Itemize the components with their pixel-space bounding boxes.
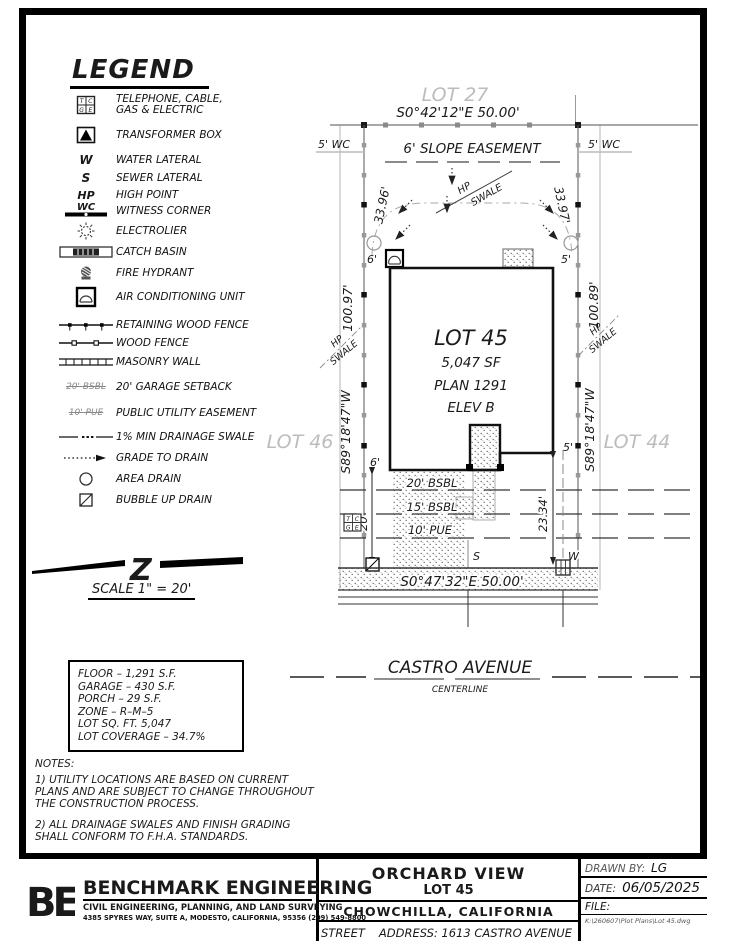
diag-dim-right: 33.97': [551, 185, 573, 225]
wc-left-label: 5' WC: [318, 138, 350, 151]
legend-item: AIR CONDITIONING UNIT: [56, 287, 245, 307]
lot-stats-box: FLOOR – 1,291 S.F. GARAGE – 430 S.F. POR…: [68, 660, 244, 752]
lot27-label: LOT 27: [422, 84, 489, 106]
legend-item-label: RETAINING WOOD FENCE: [116, 320, 249, 331]
swale-curve: [372, 203, 572, 255]
house-plan-label: PLAN 1291: [434, 378, 508, 394]
stat-zone: ZONE – R–M–5: [78, 706, 234, 719]
diag-dim-left: 33.96': [371, 185, 393, 225]
wc-right: 5' WC: [578, 138, 632, 152]
stat-floor: FLOOR – 1,291 S.F.: [78, 668, 234, 681]
porch: [470, 425, 500, 470]
legend-item: MASONRY WALL: [56, 352, 201, 372]
bearing-right-text: S89°18'47"W: [582, 388, 597, 472]
legend-item: RETAINING WOOD FENCE: [56, 315, 249, 335]
date-value: 06/05/2025: [622, 880, 700, 896]
project-city: CHOWCHILLA, CALIFORNIA: [319, 900, 578, 920]
retaining-wood-fence-icon: [56, 317, 116, 333]
telephone-cable-gas-electric-icon: T C G E: [56, 95, 116, 115]
street-label: STREET: [321, 926, 365, 940]
south-bearing: S0°47'32"E 50.00': [400, 574, 523, 590]
dim-6-bottom: 6': [370, 456, 380, 469]
legend-item-label: BUBBLE UP DRAIN: [116, 495, 212, 506]
stat-garage: GARAGE – 430 S.F.: [78, 681, 234, 694]
dim-6-top: 6': [367, 253, 377, 266]
house-sf-label: 5,047 SF: [441, 355, 501, 371]
dim-2334-text: 23.34': [536, 496, 550, 532]
witness-corner-icon: WC: [56, 201, 116, 221]
file-row: FILE:: [581, 899, 707, 915]
legend-item: AREA DRAIN: [56, 469, 181, 489]
water-lateral-symbol: W: [56, 153, 116, 167]
pue-10-label: 10' PUE: [408, 523, 453, 537]
benchmark-logo: BE: [27, 876, 75, 924]
legend-item-label: FIRE HYDRANT: [116, 268, 194, 279]
legend-item-label: 20' GARAGE SETBACK: [116, 382, 232, 393]
catch-basin-icon: [56, 244, 116, 260]
tcge-box-plan: T C G E: [344, 514, 361, 532]
title-block-project: ORCHARD VIEW LOT 45 CHOWCHILLA, CALIFORN…: [319, 859, 581, 941]
project-name: ORCHARD VIEW: [319, 864, 578, 883]
legend-item: 1% MIN DRAINAGE SWALE: [56, 427, 254, 447]
ac-unit-icon: [56, 286, 116, 308]
note-1: 1) UTILITY LOCATIONS ARE BASED ON CURREN…: [35, 774, 325, 810]
setback-20-label: 20' BSBL: [407, 476, 458, 490]
legend-item-label: AREA DRAIN: [116, 474, 181, 485]
dist-left: 100.97': [340, 284, 355, 331]
title-block-company: BE BENCHMARK ENGINEERING CIVIL ENGINEERI…: [19, 859, 319, 941]
file-path: K:\260607\Plot Plans\Lot 45.dwg: [581, 915, 707, 927]
ac-unit: [386, 250, 403, 267]
dim-5-bottom: 5': [563, 441, 573, 454]
lot44-label: LOT 44: [604, 431, 671, 453]
lot46-label: LOT 46: [267, 431, 334, 453]
site-plan: LOT 27 S0°42'12"E 50.00' 5' WC 5' WC 6' …: [260, 78, 708, 746]
swale-text: SWALE: [469, 182, 505, 209]
centerline-label: CENTERLINE: [432, 685, 489, 695]
fire-hydrant-icon: [56, 263, 116, 283]
plot-plan-sheet: LEGEND T C G E TELEPHONE, CABLE, GAS & E…: [0, 0, 733, 948]
scale-label: SCALE 1" = 20': [88, 582, 195, 600]
wood-fence-icon: [56, 336, 116, 350]
legend-item-label: WITNESS CORNER: [116, 206, 211, 217]
legend-item-label: CATCH BASIN: [116, 247, 187, 258]
tcge-letter: E: [355, 525, 359, 532]
tcge-letter: G: [346, 525, 351, 532]
legend-item: CATCH BASIN: [56, 242, 187, 262]
concrete-pad: [503, 249, 533, 267]
legend-item-label: MASONRY WALL: [116, 357, 201, 368]
legend-item-label: 1% MIN DRAINAGE SWALE: [116, 432, 254, 443]
house-elev-label: ELEV B: [447, 400, 494, 416]
legend-item: BUBBLE UP DRAIN: [56, 490, 212, 510]
legend-item-label: HIGH POINT: [116, 190, 178, 201]
drawn-by-row: DRAWN BY: LG: [581, 859, 707, 878]
house-lot-label: LOT 45: [434, 326, 508, 350]
stat-lot-sqft: LOT SQ. FT. 5,047: [78, 718, 234, 731]
file-label: FILE:: [585, 901, 610, 913]
date-row: DATE: 06/05/2025: [581, 878, 707, 899]
bearing-left: S89°18'47"W: [338, 390, 353, 474]
east-fence: [575, 125, 581, 568]
legend-item: WOOD FENCE: [56, 333, 189, 353]
bearing-left-text: S89°18'47"W: [338, 390, 353, 474]
legend-item: FIRE HYDRANT: [56, 263, 194, 283]
drawn-by-value: LG: [651, 861, 667, 875]
legend-title: LEGEND: [70, 55, 209, 89]
slope-easement-label: 6' SLOPE EASEMENT: [403, 141, 542, 157]
company-name: BENCHMARK ENGINEERING: [83, 878, 312, 901]
tcge-letter: C: [88, 98, 93, 105]
legend-item: 20' BSBL 20' GARAGE SETBACK: [56, 377, 232, 397]
dist-right-text: 100.89': [586, 281, 601, 328]
diag-left-text: 33.96': [371, 185, 393, 225]
tcge-letter: G: [79, 107, 84, 114]
legend-item: WC WITNESS CORNER: [56, 200, 211, 222]
hp-swale-label-center: HP SWALE: [456, 167, 505, 212]
notes-title: NOTES:: [35, 758, 325, 770]
legend-item: W WATER LATERAL: [56, 150, 202, 170]
area-drain-icon: [56, 470, 116, 488]
garage-setback-symbol: 20' BSBL: [56, 382, 116, 392]
west-fence: [361, 125, 367, 568]
area-drain-west: [367, 236, 381, 250]
north-bearing: S0°42'12"E 50.00': [396, 105, 519, 121]
project-lot: LOT 45: [319, 883, 578, 898]
drawn-by-label: DRAWN BY:: [585, 863, 645, 875]
sewer-lateral-symbol: S: [56, 171, 116, 185]
dist-right: 100.89': [586, 281, 601, 328]
legend-item-label: WOOD FENCE: [116, 338, 189, 349]
water-lateral: W: [556, 450, 580, 575]
legend-item-label: TELEPHONE, CABLE, GAS & ELECTRIC: [116, 94, 223, 116]
legend-item-label: TRANSFORMER BOX: [116, 130, 222, 141]
porch-column: [497, 464, 504, 471]
porch-column: [466, 464, 473, 471]
walkway-jog: [456, 497, 473, 519]
setback-15-label: 15' BSBL: [407, 500, 458, 514]
stat-coverage: LOT COVERAGE – 34.7%: [78, 731, 234, 744]
stat-porch: PORCH – 29 S.F.: [78, 693, 234, 706]
date-label: DATE:: [585, 883, 616, 895]
wc-left: 5' WC: [316, 138, 364, 152]
legend-item-label: PUBLIC UTILITY EASEMENT: [116, 408, 256, 419]
lateral-extensions: [468, 590, 563, 627]
legend-item: 10' PUE PUBLIC UTILITY EASEMENT: [56, 403, 256, 423]
wc-symbol: WC: [77, 202, 96, 213]
tcge-letter: E: [89, 107, 93, 114]
legend-item-label: SEWER LATERAL: [116, 173, 203, 184]
legend-item: ELECTROLIER: [56, 221, 187, 241]
dim-5-top: 5': [561, 253, 571, 266]
walkway: [473, 470, 495, 520]
title-block: BE BENCHMARK ENGINEERING CIVIL ENGINEERI…: [19, 853, 707, 941]
tcge-letter: T: [80, 98, 85, 105]
logo-text: BE: [27, 880, 75, 924]
masonry-wall-icon: [56, 355, 116, 369]
sewer-label: S: [473, 550, 480, 563]
wc-right-label: 5' WC: [588, 138, 620, 151]
drainage-swale-line-icon: [56, 432, 116, 442]
legend-item-label: AIR CONDITIONING UNIT: [116, 292, 245, 303]
legend-item: GRADE TO DRAIN: [56, 448, 208, 468]
legend-item-label: GRADE TO DRAIN: [116, 453, 208, 464]
title-block-meta: DRAWN BY: LG DATE: 06/05/2025 FILE: K:\2…: [581, 859, 707, 941]
dist-left-text: 100.97': [340, 284, 355, 331]
company-address: 4385 SPYRES WAY, SUITE A, MODESTO, CALIF…: [83, 914, 312, 922]
legend-item-label: ELECTROLIER: [116, 226, 187, 237]
sewer-lateral: S: [468, 540, 480, 568]
hp-text: HP: [456, 180, 474, 197]
street-address-row: STREET ADDRESS: 1613 CASTRO AVENUE: [319, 920, 578, 941]
note-2: 2) ALL DRAINAGE SWALES AND FINISH GRADIN…: [35, 819, 325, 843]
transformer-box-icon: [56, 126, 116, 144]
street-name: CASTRO AVENUE: [388, 658, 533, 678]
company-subtitle: CIVIL ENGINEERING, PLANNING, AND LAND SU…: [83, 902, 312, 912]
legend-item-label: WATER LATERAL: [116, 155, 202, 166]
bearing-right: S89°18'47"W: [582, 388, 597, 472]
legend-item: TRANSFORMER BOX: [56, 125, 222, 145]
electrolier-icon: [56, 221, 116, 241]
pue-symbol: 10' PUE: [56, 408, 116, 418]
grade-to-drain-icon: [56, 452, 116, 464]
dim-2334: 23.34': [536, 496, 550, 532]
legend-item: T C G E TELEPHONE, CABLE, GAS & ELECTRIC: [56, 92, 223, 118]
diag-right-text: 33.97': [551, 185, 573, 225]
notes: NOTES: 1) UTILITY LOCATIONS ARE BASED ON…: [35, 758, 325, 852]
bubble-up-drain-icon: [56, 491, 116, 509]
street-address-value: ADDRESS: 1613 CASTRO AVENUE: [379, 926, 572, 940]
